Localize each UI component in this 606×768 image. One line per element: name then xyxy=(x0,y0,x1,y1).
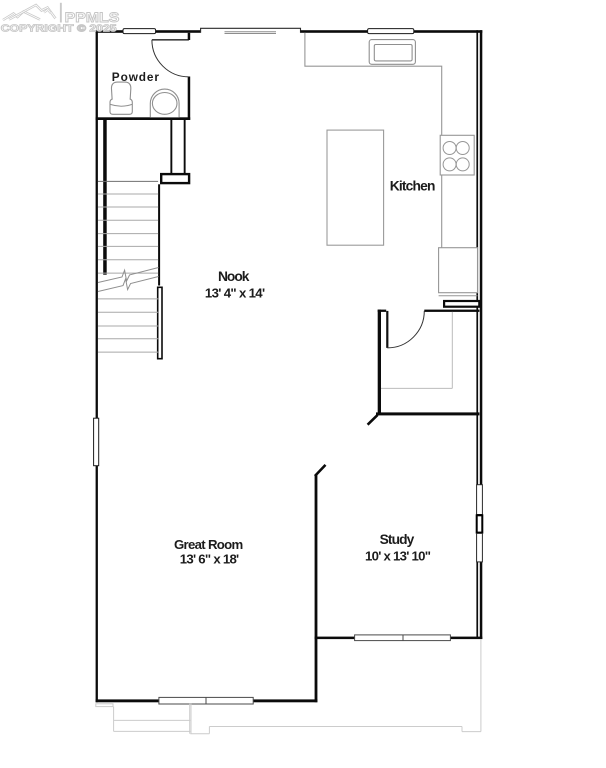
svg-text:COPYRIGHT © 2025: COPYRIGHT © 2025 xyxy=(1,23,117,34)
svg-text:Great Room: Great Room xyxy=(174,537,243,552)
svg-text:13' 6" x 18': 13' 6" x 18' xyxy=(180,552,239,567)
svg-text:Powder: Powder xyxy=(112,70,160,84)
svg-text:Nook: Nook xyxy=(218,269,250,284)
svg-text:Study: Study xyxy=(380,532,415,547)
svg-text:13' 4" x 14': 13' 4" x 14' xyxy=(205,286,265,301)
svg-text:Kitchen: Kitchen xyxy=(390,179,436,194)
svg-text:10' x 13' 10": 10' x 13' 10" xyxy=(365,548,431,563)
